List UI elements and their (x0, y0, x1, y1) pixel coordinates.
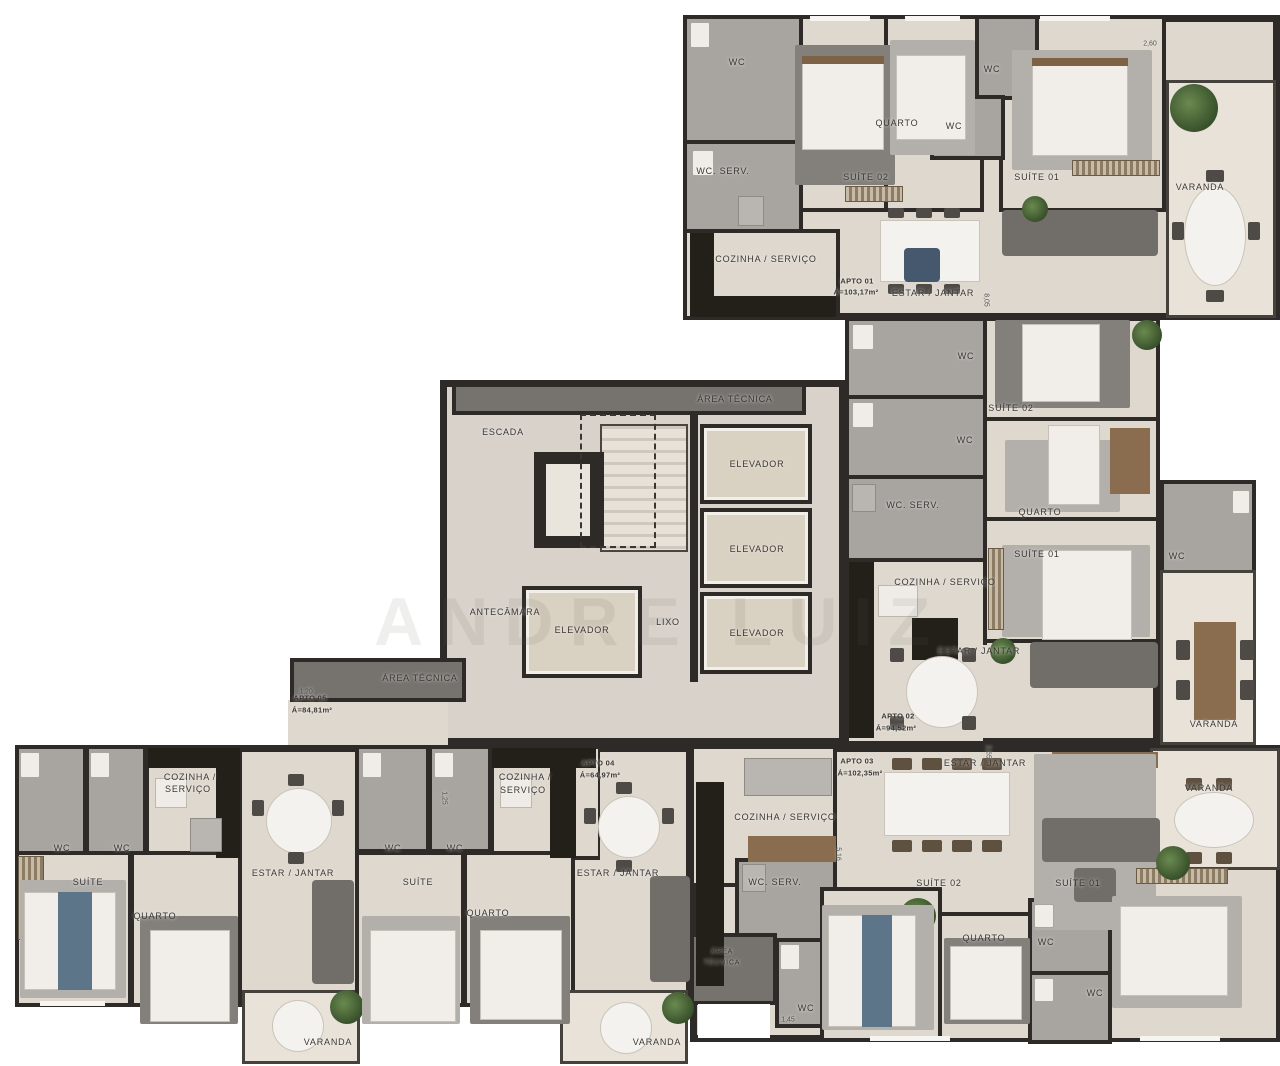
plant (1022, 196, 1048, 222)
chair (288, 774, 304, 786)
headboard (1032, 58, 1128, 66)
area-tecnica-strip-left (290, 658, 466, 702)
void-notch (698, 1004, 770, 1038)
kitchen-island (748, 836, 836, 862)
window (1140, 1036, 1220, 1041)
toilet (90, 752, 110, 778)
chair (962, 716, 976, 730)
washer (738, 196, 764, 226)
balcony-table (1174, 792, 1254, 848)
bed (1048, 425, 1100, 505)
sink (692, 150, 714, 176)
chair (962, 648, 976, 662)
window (1040, 16, 1110, 21)
chair (1176, 680, 1190, 700)
plant (1156, 846, 1190, 880)
bed (480, 930, 562, 1020)
chair (952, 840, 972, 852)
toilet (20, 752, 40, 778)
plant (990, 638, 1016, 664)
chair (1216, 852, 1232, 864)
kitchen-counter (696, 782, 724, 986)
dining-table (598, 796, 660, 858)
dining-table (266, 788, 332, 854)
window (810, 16, 870, 21)
bed (1042, 550, 1132, 640)
desk (1110, 428, 1150, 494)
plant (1170, 84, 1218, 132)
window (870, 1036, 950, 1041)
watermark: ANDRE LUIZ (374, 583, 946, 661)
entry-hall-floor (288, 700, 448, 748)
bed (896, 55, 966, 140)
armchair (904, 248, 940, 282)
kitchen-counter (550, 768, 576, 858)
chair (944, 208, 960, 218)
sink (1034, 904, 1054, 928)
headboard (802, 56, 884, 64)
wardrobe (988, 548, 1004, 630)
elevator-car (700, 508, 812, 588)
chair (1206, 290, 1224, 302)
dining-table (884, 772, 1010, 836)
bed (150, 930, 230, 1022)
stair-path (580, 414, 656, 548)
chair (1240, 680, 1254, 700)
chair (1240, 640, 1254, 660)
chair (982, 758, 1002, 770)
bed (370, 930, 456, 1022)
kitchen-counter (492, 748, 596, 768)
chair (888, 284, 904, 294)
chair (1172, 222, 1184, 240)
plant (662, 992, 694, 1024)
bed (1022, 324, 1100, 402)
balcony-table (272, 1000, 324, 1052)
balcony-table (600, 1002, 652, 1054)
chair (922, 840, 942, 852)
chair (288, 852, 304, 864)
window (40, 1001, 105, 1006)
chair (916, 208, 932, 218)
bed-throw (862, 915, 892, 1027)
toilet (780, 944, 800, 970)
chair (1248, 222, 1260, 240)
wardrobe (845, 186, 903, 202)
chair (616, 860, 632, 872)
kitchen-counter (690, 296, 836, 317)
chair (662, 808, 674, 824)
sink (1232, 490, 1250, 514)
kitchen-counter (148, 748, 240, 768)
sofa (650, 876, 690, 982)
appliances (744, 758, 832, 796)
fridge (190, 818, 222, 852)
sofa (1030, 642, 1158, 688)
toilet (690, 22, 710, 48)
kitchen-island (155, 778, 187, 808)
chair (1206, 170, 1224, 182)
chair (922, 758, 942, 770)
chair (892, 758, 912, 770)
bed-throw (58, 892, 92, 990)
kitchen-island (500, 778, 532, 808)
washer (852, 484, 876, 512)
bed (1120, 906, 1228, 996)
chair (252, 800, 264, 816)
bed (1032, 64, 1128, 156)
sink (852, 324, 874, 350)
chair (892, 840, 912, 852)
sink (852, 402, 874, 428)
chair (982, 840, 1002, 852)
chair (616, 782, 632, 794)
chair (888, 208, 904, 218)
balcony-table (1184, 186, 1246, 286)
chair (1186, 778, 1202, 790)
balcony-table (1194, 622, 1236, 720)
bed (950, 946, 1022, 1020)
chair (890, 716, 904, 730)
elevator-car (700, 424, 812, 504)
chair (1176, 640, 1190, 660)
chair (944, 284, 960, 294)
wardrobe (1072, 160, 1160, 176)
window (905, 16, 960, 21)
floor-plan: ANDRE LUIZ WCQUARTOWCWCWC. SERV.SUÍTE 02… (0, 0, 1280, 1066)
bed (802, 62, 884, 150)
chair (916, 284, 932, 294)
plant (330, 990, 364, 1024)
chair (1216, 778, 1232, 790)
chair (584, 808, 596, 824)
toilet (362, 752, 382, 778)
washer (742, 864, 766, 892)
sofa (1042, 818, 1160, 862)
sofa (312, 880, 354, 984)
plant (1132, 320, 1162, 350)
area-tecnica-strip-top (452, 383, 806, 415)
sink (1034, 978, 1054, 1002)
chair (952, 758, 972, 770)
toilet (434, 752, 454, 778)
armchair (1074, 868, 1116, 902)
chair (332, 800, 344, 816)
